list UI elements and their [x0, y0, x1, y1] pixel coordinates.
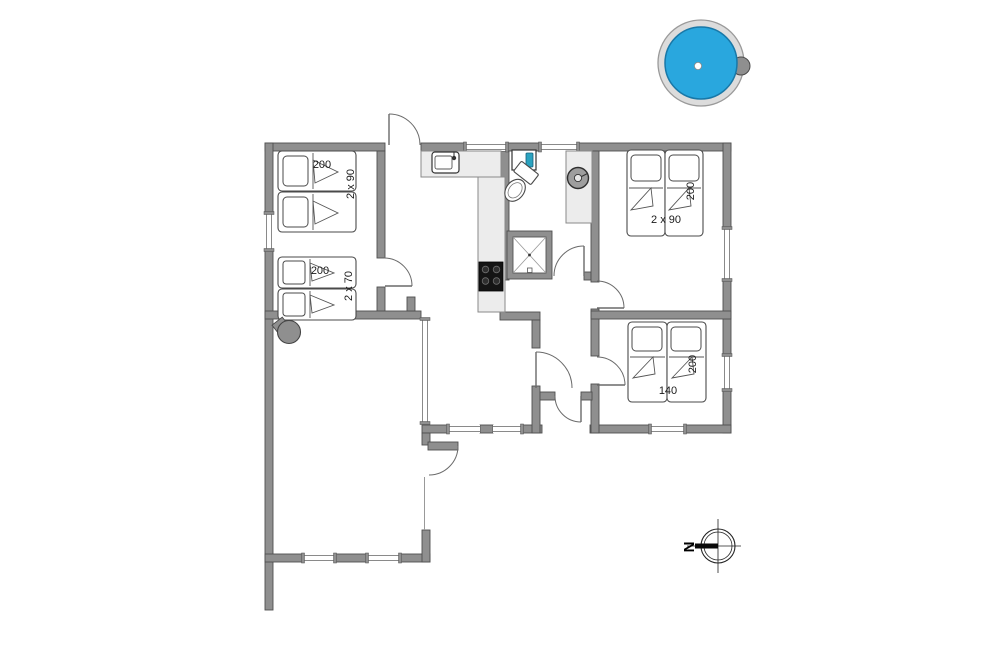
bed-length-label: 200	[313, 159, 331, 171]
stove-icon	[479, 262, 503, 291]
wall	[532, 320, 540, 348]
window	[649, 424, 687, 434]
wall	[407, 297, 415, 311]
door-left-bedroom	[384, 258, 412, 286]
door-hall-west	[536, 352, 572, 388]
door-hall-south	[555, 396, 581, 422]
laundry-nook	[566, 151, 592, 223]
window	[420, 318, 430, 425]
door-bedroom-bottom-right	[597, 357, 625, 385]
grill-icon	[272, 317, 300, 343]
entrance-door-top	[389, 114, 420, 145]
bed-length-label: 200	[687, 355, 699, 373]
bed-length-label: 200	[685, 182, 697, 200]
kitchen-counter	[478, 177, 505, 312]
window	[722, 227, 732, 282]
door-bedroom-top-right	[597, 281, 624, 308]
hot-tub-jet-icon	[694, 62, 701, 69]
wall	[581, 392, 592, 400]
window	[493, 424, 524, 434]
compass-north-arrow	[695, 544, 718, 549]
bathroom	[497, 150, 592, 279]
wall	[584, 272, 591, 280]
bed-width-label: 2 x 70	[343, 271, 355, 301]
window	[264, 212, 274, 252]
shower-icon	[507, 231, 552, 279]
wall	[265, 143, 273, 213]
floor-plan: 200 2 x 90 200 2 x 70 2 x 90 200 140 200…	[0, 0, 1000, 667]
hot-tub-water	[665, 27, 737, 99]
compass-north-label: N	[681, 542, 698, 553]
window	[722, 354, 732, 392]
bed-width-label: 140	[659, 385, 677, 397]
wall	[421, 143, 465, 151]
floor-plan-canvas: 200 2 x 90 200 2 x 70 2 x 90 200 140 200…	[0, 0, 1000, 667]
hot-tub	[658, 20, 750, 106]
wall	[480, 425, 493, 433]
terrace-wall	[335, 554, 367, 562]
wall	[591, 384, 599, 433]
wall	[532, 386, 540, 433]
wall	[422, 425, 448, 433]
fence-window	[302, 553, 337, 563]
kitchen-sink-icon	[432, 152, 459, 173]
bed-width-label: 2 x 90	[651, 214, 681, 226]
terrace-wall	[422, 530, 430, 562]
wall	[265, 143, 385, 151]
wall	[591, 311, 731, 319]
wall	[377, 151, 385, 258]
wall	[540, 392, 555, 400]
bed-width-label: 2 x 90	[345, 169, 357, 199]
door-bathroom	[554, 246, 584, 276]
washing-machine-icon	[568, 168, 589, 189]
window	[447, 424, 481, 434]
kitchen	[421, 151, 505, 312]
terrace-door	[428, 442, 458, 475]
wall	[723, 143, 731, 228]
wall	[500, 312, 540, 320]
compass: N	[681, 519, 741, 573]
fence-window	[366, 553, 402, 563]
wall	[685, 425, 731, 433]
bed-length-label: 200	[311, 265, 329, 277]
terrace-wall	[265, 554, 303, 562]
